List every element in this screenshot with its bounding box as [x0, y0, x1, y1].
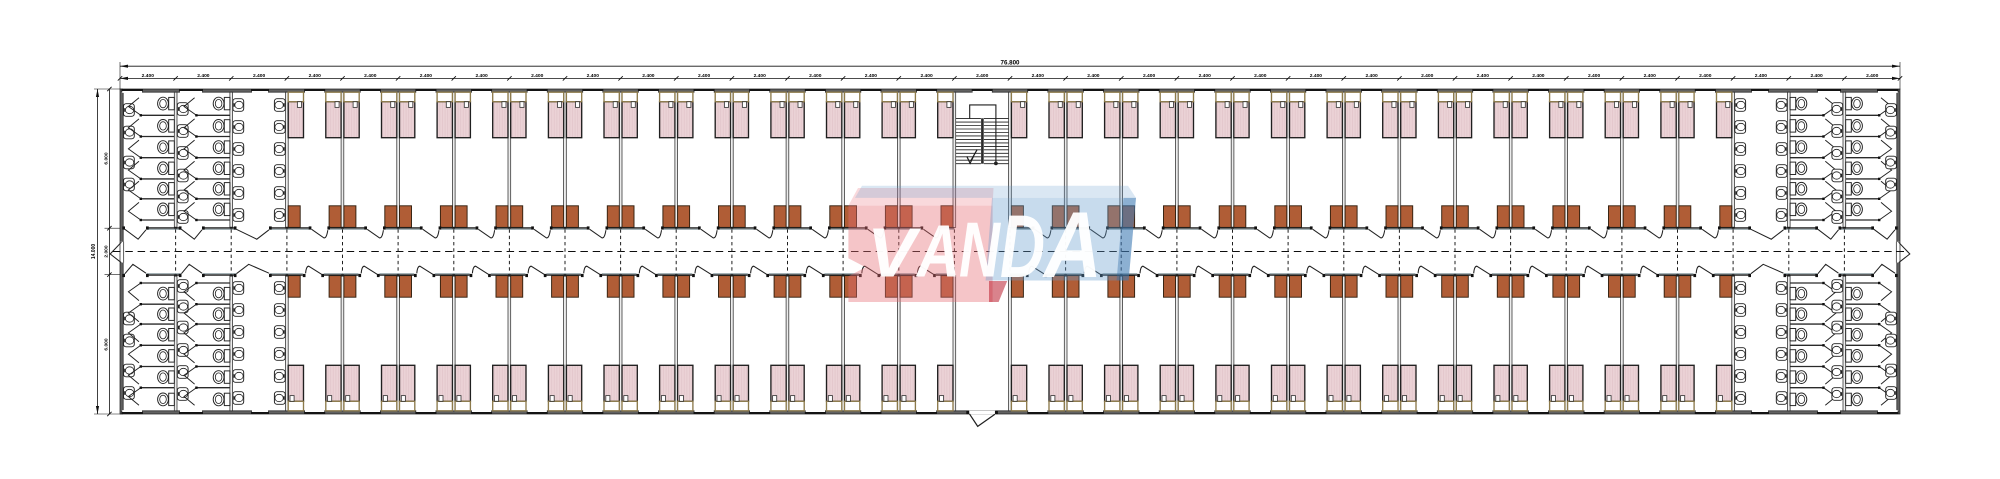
svg-text:A: A	[915, 210, 960, 293]
svg-text:2.000: 2.000	[103, 245, 109, 258]
svg-text:76.800: 76.800	[1001, 59, 1020, 66]
svg-text:2.400: 2.400	[309, 73, 322, 79]
svg-text:2.400: 2.400	[809, 73, 822, 79]
svg-text:2.400: 2.400	[698, 73, 711, 79]
svg-text:2.400: 2.400	[1588, 73, 1601, 79]
svg-text:2.400: 2.400	[1810, 73, 1823, 79]
svg-text:2.400: 2.400	[976, 73, 989, 79]
svg-text:14.000: 14.000	[91, 244, 97, 260]
svg-text:2.400: 2.400	[1254, 73, 1267, 79]
svg-text:2.400: 2.400	[642, 73, 655, 79]
svg-text:2.400: 2.400	[1755, 73, 1768, 79]
svg-text:2.400: 2.400	[364, 73, 377, 79]
svg-text:6.000: 6.000	[103, 152, 109, 165]
svg-text:2.400: 2.400	[1644, 73, 1657, 79]
svg-text:2.400: 2.400	[1032, 73, 1045, 79]
svg-text:2.400: 2.400	[142, 73, 155, 79]
svg-text:2.400: 2.400	[1365, 73, 1378, 79]
svg-text:2.400: 2.400	[920, 73, 933, 79]
svg-text:2.400: 2.400	[754, 73, 767, 79]
svg-text:2.400: 2.400	[1421, 73, 1434, 79]
svg-text:D: D	[1000, 196, 1045, 296]
svg-text:2.400: 2.400	[1087, 73, 1100, 79]
svg-text:2.400: 2.400	[1199, 73, 1212, 79]
svg-text:2.400: 2.400	[420, 73, 433, 79]
svg-text:2.400: 2.400	[531, 73, 544, 79]
svg-text:V: V	[867, 214, 922, 292]
svg-text:2.400: 2.400	[253, 73, 266, 79]
svg-text:2.400: 2.400	[475, 73, 488, 79]
svg-text:6.000: 6.000	[103, 338, 109, 351]
svg-text:A: A	[1042, 192, 1102, 297]
svg-text:2.400: 2.400	[1866, 73, 1879, 79]
svg-text:2.400: 2.400	[587, 73, 600, 79]
svg-text:2.400: 2.400	[1477, 73, 1490, 79]
svg-text:2.400: 2.400	[1532, 73, 1545, 79]
svg-text:2.400: 2.400	[1310, 73, 1323, 79]
svg-text:N: N	[959, 206, 1001, 294]
svg-text:2.400: 2.400	[1699, 73, 1712, 79]
svg-text:2.400: 2.400	[865, 73, 878, 79]
svg-text:2.400: 2.400	[1143, 73, 1156, 79]
svg-text:2.400: 2.400	[197, 73, 210, 79]
